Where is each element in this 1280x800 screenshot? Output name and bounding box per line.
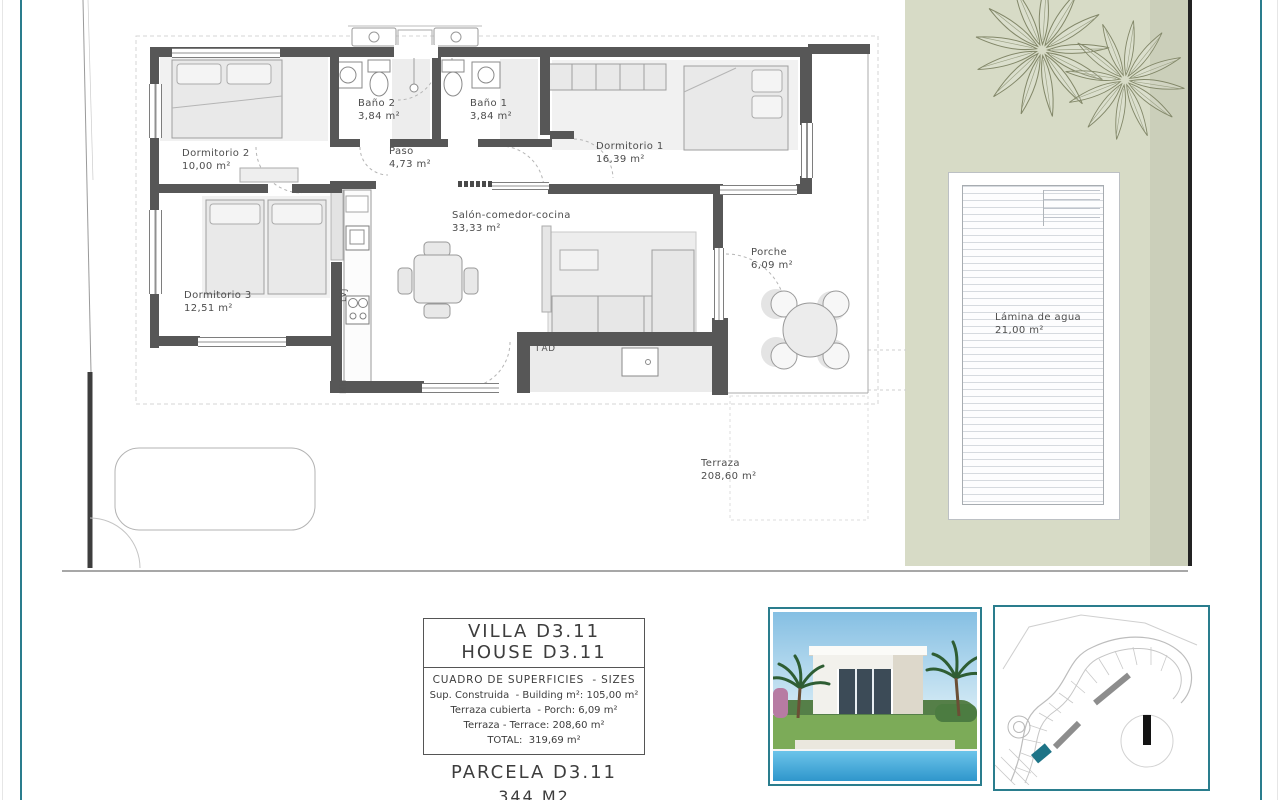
- wall: [540, 57, 550, 135]
- room-label-dormitorio-3: Dormitorio 312,51 m²: [184, 290, 252, 315]
- room-label-dormitorio-1: Dormitorio 116,39 m²: [596, 141, 664, 166]
- entry-door-opening: [394, 45, 438, 58]
- size-row: TOTAL: 319,69 m²: [424, 733, 644, 748]
- window: [149, 84, 162, 138]
- size-row: Terraza - Terrace: 208,60 m²: [424, 718, 644, 733]
- room-label-salon: Salón-comedor-cocina33,33 m²: [452, 210, 571, 235]
- villa-photo: [768, 607, 982, 786]
- sheet-border-right: [1260, 0, 1262, 800]
- window: [149, 210, 162, 294]
- window: [720, 185, 797, 195]
- surface-schedule: VILLA D3.11 HOUSE D3.11 CUADRO DE SUPERF…: [423, 618, 645, 800]
- wall: [800, 176, 812, 194]
- sheet-edge-line: [2, 0, 3, 800]
- parcel-area: 344 M2: [423, 786, 645, 800]
- site-map: [993, 605, 1210, 791]
- sliding-door: [422, 383, 499, 393]
- wall: [331, 262, 342, 389]
- wall: [150, 184, 268, 193]
- size-row: Sup. Construida - Building m²: 105,00 m²: [424, 688, 644, 703]
- window: [198, 337, 286, 347]
- paso-dots: [458, 181, 492, 187]
- palm-icon: [921, 636, 977, 716]
- sheet-edge-line: [1277, 0, 1278, 800]
- sofa-set: [542, 226, 696, 344]
- room-label-paso: Paso4,73 m²: [389, 146, 431, 171]
- dark-road-segments: [1055, 675, 1129, 747]
- site-map-drawing: [995, 607, 1204, 785]
- room-label-bano-1: Baño 13,84 m²: [470, 98, 512, 123]
- wall: [548, 184, 722, 194]
- house-title: HOUSE D3.11: [424, 642, 644, 663]
- wall: [800, 47, 812, 125]
- wall: [478, 139, 552, 147]
- palm-icon: [773, 648, 835, 718]
- villa-photo-content: [773, 612, 977, 781]
- north-arrow: [1121, 715, 1173, 767]
- wall: [808, 44, 870, 54]
- outdoor-kitchen-sink: [622, 348, 658, 376]
- roundabout: [1008, 716, 1030, 738]
- wall: [150, 336, 200, 346]
- wall: [712, 318, 728, 395]
- laundry-label: ΓAD: [536, 344, 556, 354]
- wall: [292, 184, 342, 193]
- porch-table-set: [761, 289, 849, 369]
- window: [801, 123, 813, 178]
- sizes-box: CUADRO DE SUPERFICIES - SIZES Sup. Const…: [423, 668, 645, 755]
- dining-set: [398, 242, 478, 318]
- floor-plan-sheet: Lámina de agua21,00 m²: [0, 0, 1280, 800]
- room-label-terraza: Terraza208,60 m²: [701, 458, 757, 483]
- wall: [550, 131, 574, 139]
- title-box: VILLA D3.11 HOUSE D3.11: [423, 618, 645, 668]
- room-label-dormitorio-2: Dormitorio 210,00 m²: [182, 148, 250, 173]
- wall: [330, 57, 339, 143]
- wall: [286, 336, 342, 346]
- window: [172, 48, 280, 58]
- dishwasher-label: LVJ: [339, 288, 349, 302]
- sheet-border-left: [20, 0, 22, 800]
- car-space: [115, 448, 315, 530]
- sliding-door: [492, 182, 549, 190]
- room-label-porche: Porche6,09 m²: [751, 247, 793, 272]
- room-label-bano-2: Baño 23,84 m²: [358, 98, 400, 123]
- wall: [330, 139, 360, 147]
- sizes-header: CUADRO DE SUPERFICIES - SIZES: [424, 673, 644, 688]
- pool-photo: [773, 749, 977, 781]
- highlighted-plot: [1031, 743, 1052, 763]
- villa-title: VILLA D3.11: [424, 621, 644, 642]
- size-row: Terraza cubierta - Porch: 6,09 m²: [424, 703, 644, 718]
- parcel-title: PARCELA D3.11: [423, 760, 645, 786]
- wall: [432, 57, 441, 143]
- sliding-door: [714, 248, 724, 320]
- oven-label: MH: [339, 379, 349, 394]
